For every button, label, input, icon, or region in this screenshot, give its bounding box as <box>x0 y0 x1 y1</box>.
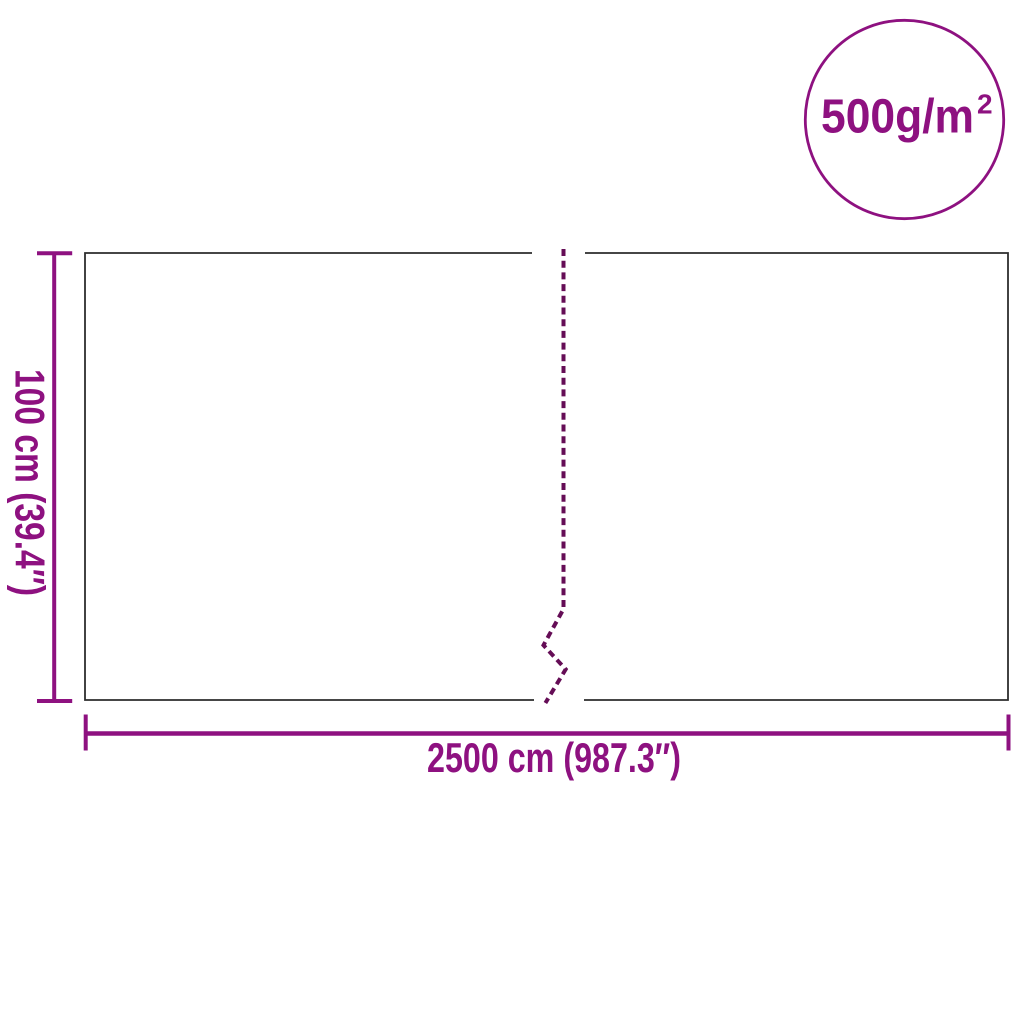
svg-text:2500 cm (987.3″): 2500 cm (987.3″) <box>427 734 681 781</box>
svg-text:100 cm (39.4″): 100 cm (39.4″) <box>7 369 54 596</box>
svg-text:500g/m: 500g/m <box>821 91 974 144</box>
svg-text:2: 2 <box>977 88 993 119</box>
